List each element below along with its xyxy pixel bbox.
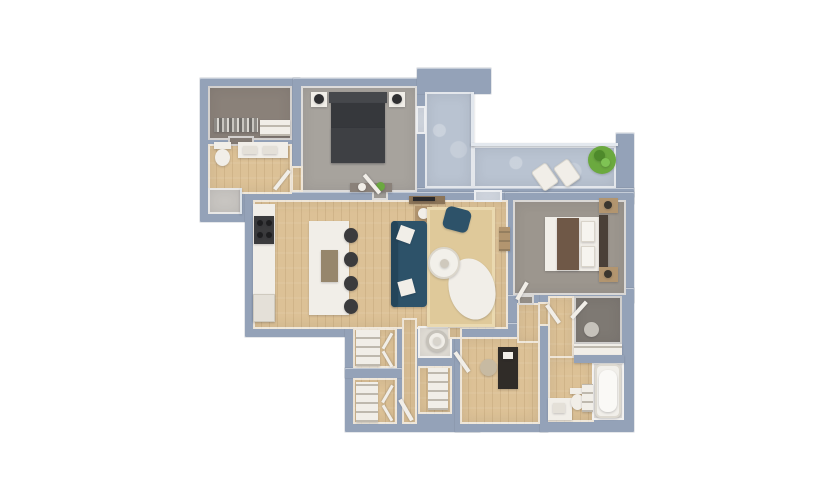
storage-shelves xyxy=(428,368,448,410)
balcony-floor-left xyxy=(425,92,473,188)
washer-door-dot xyxy=(433,337,441,345)
bed-2-pillow-top xyxy=(581,221,595,242)
vanity-1-sink-right xyxy=(263,146,277,154)
bed-2-blanket xyxy=(557,218,579,270)
closet-1-shelf xyxy=(260,120,290,136)
bed-2-headboard xyxy=(599,215,608,273)
wall-balcony-parapet-top xyxy=(417,68,491,94)
refrigerator xyxy=(253,294,275,322)
tv xyxy=(413,197,435,201)
bed-1-blanket xyxy=(331,128,385,163)
hall-entry-opening xyxy=(448,326,462,339)
desk-paper xyxy=(503,352,513,359)
dresser-1-mirror xyxy=(358,183,366,191)
bar-stool-3 xyxy=(344,276,358,291)
lamp-1-left xyxy=(314,94,324,104)
ladder-shelf xyxy=(499,227,510,251)
island-sink xyxy=(321,250,338,282)
bathtub-basin xyxy=(599,370,617,412)
bathroom-1-shower-floor xyxy=(208,188,242,214)
hall-upper-floor xyxy=(517,303,540,343)
balcony-rail-left xyxy=(471,92,474,146)
balcony-rail-bottom xyxy=(471,143,618,146)
bedroom1-balcony-sliding-door xyxy=(416,106,426,134)
bathroom-2-entry-floor xyxy=(548,296,574,360)
toilet-1-tank xyxy=(214,142,231,149)
coffee-table-decor xyxy=(440,259,449,268)
balcony-sliding-door xyxy=(474,190,502,202)
desk-chair xyxy=(480,359,497,376)
stove-burner-2 xyxy=(266,220,272,226)
balcony-plant-light xyxy=(601,158,610,167)
bar-stool-2 xyxy=(344,252,358,267)
vanity-1-sink-left xyxy=(243,146,257,154)
bar-stool-1 xyxy=(344,228,358,243)
bar-stool-4 xyxy=(344,299,358,314)
toilet-1-bowl xyxy=(215,149,230,166)
closet-1-clothes-rod xyxy=(214,118,258,132)
wall-divider-bathroom-2 xyxy=(574,355,624,363)
lamp-1-right xyxy=(392,94,402,104)
towel-ladder xyxy=(582,384,593,412)
closet-2-hamper xyxy=(584,322,599,337)
shower-1-glass-panel xyxy=(240,188,242,214)
doorway-bath1-bedroom1 xyxy=(291,166,303,192)
floor-plan-screenshot xyxy=(0,0,825,500)
vanity-2-sink xyxy=(553,403,565,413)
bed-2-pillow-bottom xyxy=(581,246,595,267)
stove-burner-4 xyxy=(266,232,272,238)
stove-burner-3 xyxy=(257,232,263,238)
wall-closet-divider xyxy=(345,368,402,378)
closet-a-shelves xyxy=(356,330,380,366)
bed-1-headboard xyxy=(329,92,387,103)
floor-plan-render xyxy=(0,0,825,500)
stove-burner-1 xyxy=(257,220,263,226)
nightstand-2-bottom-decor xyxy=(604,270,612,278)
closet-b-shelves xyxy=(356,382,378,422)
nightstand-2-top-decor xyxy=(604,201,612,209)
